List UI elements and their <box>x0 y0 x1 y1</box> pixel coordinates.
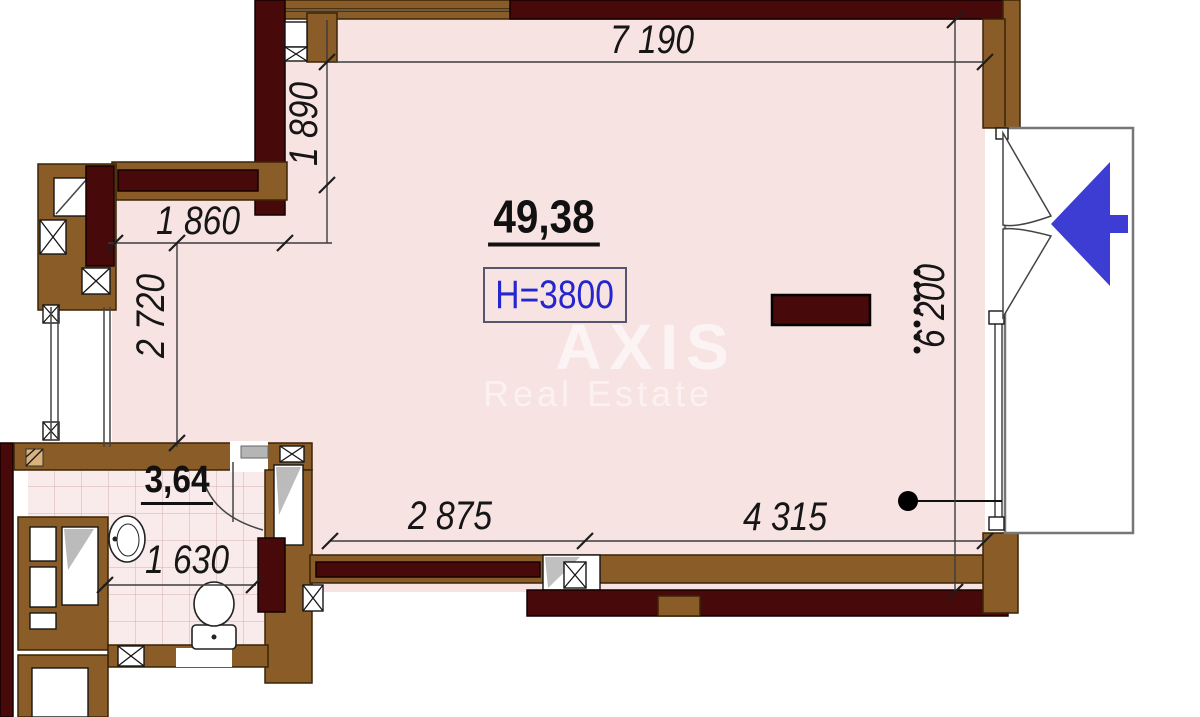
wall-segment <box>118 170 258 191</box>
wall-segment <box>316 562 540 577</box>
dim-label-bottom-width-left: 2 875 <box>408 496 492 536</box>
wall-segment <box>510 0 1005 19</box>
dim-label-right-height: 6 200 <box>911 264 951 348</box>
balcony-entry <box>989 128 1133 533</box>
wall-segment <box>658 596 700 616</box>
toilet <box>192 582 236 649</box>
ceiling-height-box: H=3800 <box>483 267 627 323</box>
floor-plan: AXIS Real Estate 7 190 1 890 1 860 2 720… <box>0 0 1200 717</box>
watermark-subtitle: Real Estate <box>483 373 713 415</box>
wall-niche <box>32 668 88 717</box>
wall-niche <box>285 22 307 47</box>
door-opening <box>176 648 232 667</box>
dim-label-bottom-width-right: 4 315 <box>743 497 827 537</box>
wall-niche <box>30 567 56 607</box>
dim-label-top-width: 7 190 <box>610 20 694 60</box>
dim-label-bathroom-width: 1 630 <box>145 540 229 580</box>
dim-label-upper-left-height: 1 890 <box>284 82 324 166</box>
wall-segment <box>983 19 1005 128</box>
wall-segment <box>258 538 285 612</box>
sink <box>109 516 145 562</box>
wall-segment <box>0 443 13 717</box>
bathroom-area-label: 3,64 <box>141 461 213 505</box>
ceiling-height-label: H=3800 <box>496 275 615 315</box>
dim-label-left-height: 2 720 <box>131 274 171 358</box>
wall-niche <box>30 613 56 629</box>
door-lintel <box>241 446 268 458</box>
wall-segment <box>527 590 1008 616</box>
wall-segment <box>307 13 337 62</box>
main-room-area-label: 49,38 <box>488 194 600 247</box>
window-frame-block <box>989 311 1004 324</box>
reference-point-marker <box>898 491 918 511</box>
column-block <box>772 295 870 325</box>
wall-segment <box>983 533 1018 613</box>
loggia-floor <box>60 307 107 447</box>
dim-label-upper-left-width: 1 860 <box>156 201 240 241</box>
window-frame-block <box>989 517 1004 530</box>
wall-niche <box>30 527 56 561</box>
wall-segment <box>86 166 114 266</box>
